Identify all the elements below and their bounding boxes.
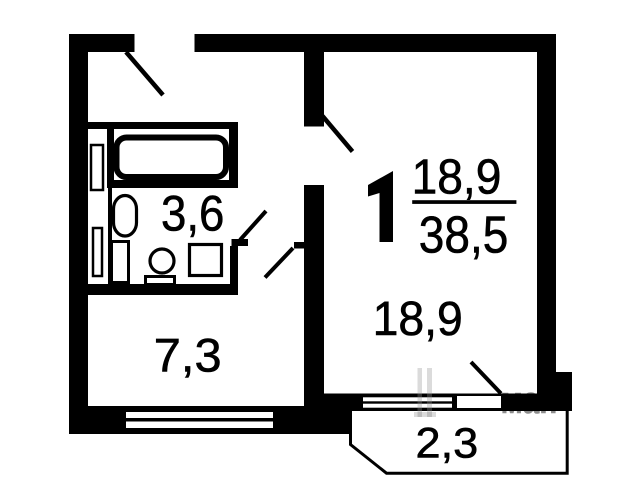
svg-text:ман: ман (501, 380, 558, 422)
svg-text:18,9: 18,9 (373, 293, 463, 346)
svg-text:3,6: 3,6 (161, 186, 224, 242)
svg-text:7,3: 7,3 (154, 328, 222, 381)
svg-text:38,5: 38,5 (419, 206, 509, 264)
svg-text:18,9: 18,9 (412, 150, 502, 205)
svg-text:2,3: 2,3 (416, 419, 479, 466)
